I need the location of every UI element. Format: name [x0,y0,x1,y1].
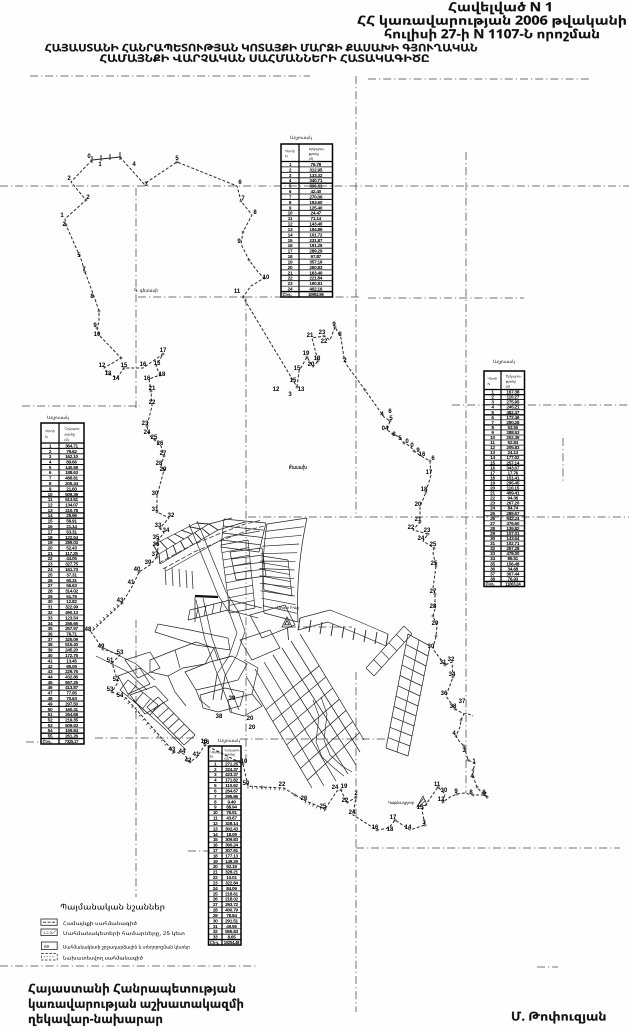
svg-text:88.94: 88.94 [226,805,237,810]
svg-text:27: 27 [48,583,53,588]
svg-text:20: 20 [247,716,254,722]
svg-text:509.39: 509.39 [65,492,78,497]
svg-text:15: 15 [290,378,297,384]
svg-text:24: 24 [48,567,53,572]
svg-text:171.82: 171.82 [225,778,238,783]
svg-text:423.37: 423.37 [225,772,238,777]
svg-text:302.43: 302.43 [225,826,238,831]
svg-text:21: 21 [288,270,293,275]
svg-text:26: 26 [301,796,308,802]
svg-text:25: 25 [48,572,53,577]
svg-text:24: 24 [288,287,293,292]
svg-text:250.83: 250.83 [309,265,322,270]
svg-text:20: 20 [249,725,256,731]
svg-text:325.09: 325.09 [65,637,78,642]
svg-text:161.73: 161.73 [65,567,78,572]
svg-text:13: 13 [48,508,53,513]
svg-text:51.79: 51.79 [66,594,77,599]
svg-text:19: 19 [303,351,310,357]
svg-text:12: 12 [48,503,53,508]
svg-text:69: 69 [44,944,50,949]
svg-text:13.45: 13.45 [66,658,77,663]
svg-text:14: 14 [213,832,218,837]
svg-text:224.37: 224.37 [225,767,238,772]
svg-text:134.07: 134.07 [65,503,78,508]
svg-text:31: 31 [152,507,159,513]
svg-text:509.93: 509.93 [65,723,78,728]
svg-text:297.50: 297.50 [65,701,78,706]
svg-text:12: 12 [273,387,280,393]
svg-text:10: 10 [288,211,293,216]
svg-text:49: 49 [98,644,105,650]
svg-text:255.65: 255.65 [65,621,78,626]
svg-text:18: 18 [421,487,428,493]
svg-text:26: 26 [157,441,164,447]
svg-text:10: 10 [263,275,270,281]
svg-text:15: 15 [213,837,218,842]
svg-text:27: 27 [160,451,167,457]
svg-text:289.29: 289.29 [309,249,322,254]
svg-text:21.60: 21.60 [66,486,77,491]
svg-text:289.03: 289.03 [65,540,78,545]
svg-text:295.86: 295.86 [225,794,238,799]
svg-text:23: 23 [142,421,149,427]
svg-text:36: 36 [441,691,448,697]
svg-text:210.78: 210.78 [65,508,78,513]
svg-text:314.02: 314.02 [65,589,78,594]
svg-text:16: 16 [203,740,210,746]
svg-text:53: 53 [107,687,114,693]
svg-text:18: 18 [314,356,321,362]
svg-text:12.82: 12.82 [66,599,77,604]
svg-text:271.25: 271.25 [225,761,238,766]
svg-text:557.25: 557.25 [65,680,78,685]
svg-text:38: 38 [490,576,495,581]
svg-text:12: 12 [438,797,445,803]
svg-text:40: 40 [134,567,141,573]
svg-text:133.32: 133.32 [309,173,322,178]
svg-text:488.81: 488.81 [65,476,78,481]
svg-text:56.63: 56.63 [66,583,77,588]
svg-text:33: 33 [213,935,218,940]
svg-text:21: 21 [415,517,422,523]
svg-text:23: 23 [319,330,326,336]
svg-text:37.31: 37.31 [66,572,77,577]
svg-text:32: 32 [168,513,175,519]
svg-text:309.83: 309.83 [225,837,238,842]
svg-text:10952.95: 10952.95 [308,292,324,297]
svg-text:21: 21 [149,386,156,392]
svg-text:13: 13 [213,826,218,831]
svg-text:31: 31 [440,660,447,666]
svg-text:41: 41 [128,580,135,586]
svg-text:16: 16 [140,362,147,368]
svg-text:29: 29 [432,621,439,627]
svg-text:322.99: 322.99 [65,605,78,610]
svg-text:18: 18 [213,853,218,858]
svg-text:17: 17 [390,815,397,821]
svg-text:26: 26 [48,578,53,583]
svg-text:12: 12 [99,363,106,369]
svg-text:41: 41 [48,658,53,663]
svg-text:245.20: 245.20 [65,648,78,653]
svg-text:25: 25 [431,561,438,567]
svg-text:24: 24 [332,785,339,791]
svg-text:90.31: 90.31 [66,578,77,583]
svg-text:143.40: 143.40 [309,222,322,227]
svg-text:38: 38 [48,642,53,647]
svg-text:328.14: 328.14 [225,821,238,826]
svg-text:270.06: 270.06 [309,194,322,199]
svg-text:19: 19 [341,784,348,790]
svg-text:413.87: 413.87 [65,685,78,690]
svg-text:10: 10 [48,492,53,497]
svg-text:140.58: 140.58 [65,465,78,470]
svg-text:10: 10 [94,332,101,338]
svg-text:21: 21 [307,333,314,339]
svg-text:18: 18 [159,372,166,378]
svg-text:97.87: 97.87 [311,254,322,259]
svg-text:53: 53 [48,723,53,728]
svg-text:52.43: 52.43 [66,546,77,551]
svg-text:291.51: 291.51 [225,918,238,923]
svg-text:10254.48: 10254.48 [224,940,240,945]
svg-text:71.14: 71.14 [311,216,322,221]
svg-text:24: 24 [349,810,356,816]
svg-text:10: 10 [213,810,218,815]
svg-text:31: 31 [213,924,218,929]
svg-text:54: 54 [117,693,124,699]
svg-text:18: 18 [387,827,394,833]
svg-text:15: 15 [294,366,301,372]
svg-text:13: 13 [105,371,112,377]
svg-text:16: 16 [419,452,426,458]
svg-text:30: 30 [48,599,53,604]
svg-text:188.63: 188.63 [65,470,78,475]
svg-text:490.13: 490.13 [65,610,78,615]
svg-text:16: 16 [372,825,379,831]
svg-text:11: 11 [213,816,218,821]
svg-text:56.91: 56.91 [66,519,77,524]
svg-text:101.72: 101.72 [309,232,322,237]
svg-text:28: 28 [48,589,53,594]
svg-text:400.79: 400.79 [225,908,238,913]
svg-text:19: 19 [48,540,53,545]
svg-text:27: 27 [430,589,437,595]
svg-text:23: 23 [288,281,293,286]
svg-text:44: 44 [48,675,53,680]
svg-text:34: 34 [163,528,170,534]
svg-text:9.49: 9.49 [227,799,236,804]
svg-text:76.78: 76.78 [311,162,322,167]
svg-text:328.21: 328.21 [225,870,238,875]
svg-text:29: 29 [48,594,53,599]
svg-text:22: 22 [321,339,328,345]
svg-text:49: 49 [48,701,53,706]
svg-text:125.40: 125.40 [309,205,322,210]
svg-text:17: 17 [160,348,167,354]
svg-text:32: 32 [448,657,455,663]
svg-text:555.83: 555.83 [225,929,238,934]
svg-text:159.84: 159.84 [65,728,78,733]
svg-text:172.75: 172.75 [65,653,78,658]
svg-text:16: 16 [144,376,151,382]
svg-text:14: 14 [113,376,120,382]
svg-text:340.71: 340.71 [309,178,322,183]
svg-text:221.84: 221.84 [309,276,322,281]
svg-text:77.95: 77.95 [66,691,77,696]
svg-text:15: 15 [288,238,293,243]
svg-text:79.62: 79.62 [66,449,77,454]
svg-text:7325.17: 7325.17 [65,739,79,744]
svg-text:26: 26 [213,897,218,902]
svg-text:18: 18 [48,535,53,540]
svg-text:12: 12 [288,222,293,227]
svg-text:293.72: 293.72 [225,902,238,907]
svg-text:44.05: 44.05 [66,556,77,561]
svg-text:42: 42 [185,758,192,764]
svg-text:28: 28 [213,908,218,913]
svg-text:23: 23 [48,562,53,567]
svg-text:17: 17 [426,470,433,476]
svg-text:390.24: 390.24 [225,843,238,848]
svg-text:110.62: 110.62 [225,783,238,788]
svg-text:23: 23 [213,881,218,886]
svg-text:177.13: 177.13 [225,853,238,858]
svg-text:16: 16 [213,843,218,848]
svg-text:20: 20 [213,864,218,869]
svg-text:20: 20 [48,546,53,551]
svg-text:40: 40 [48,653,53,658]
svg-text:54: 54 [48,728,53,733]
svg-text:21: 21 [213,870,218,875]
svg-text:25.96: 25.96 [66,513,77,518]
svg-text:14: 14 [48,513,53,518]
svg-text:70.63: 70.63 [66,696,77,701]
svg-text:264.68: 264.68 [65,712,78,717]
svg-text:46: 46 [48,685,53,690]
svg-text:30: 30 [428,644,435,650]
svg-text:194.89: 194.89 [309,227,322,232]
svg-text:55: 55 [48,734,53,739]
svg-text:32: 32 [48,610,53,615]
svg-text:29: 29 [213,913,218,918]
svg-text:205.34: 205.34 [65,481,78,486]
svg-text:24: 24 [213,886,218,891]
svg-text:16: 16 [48,524,53,529]
svg-text:22: 22 [149,400,156,406]
svg-text:39: 39 [145,560,152,566]
svg-text:25: 25 [430,542,437,548]
svg-text:78.84: 78.84 [226,913,237,918]
svg-text:20: 20 [308,362,315,368]
svg-text:34: 34 [48,621,53,626]
svg-text:14: 14 [288,232,293,237]
svg-text:307.91: 307.91 [225,848,238,853]
svg-text:35: 35 [48,626,53,631]
svg-text:432.86: 432.86 [65,675,78,680]
svg-text:15: 15 [121,363,128,369]
svg-text:231.87: 231.87 [309,238,322,243]
svg-text:117.25: 117.25 [65,551,78,556]
svg-text:15: 15 [48,519,53,524]
svg-text:43.67: 43.67 [226,816,237,821]
svg-text:04: 04 [382,426,389,432]
svg-text:37: 37 [48,637,53,642]
svg-text:322.84: 322.84 [225,881,238,886]
svg-text:218.61: 218.61 [225,891,238,896]
svg-text:18.09: 18.09 [226,832,237,837]
svg-text:50: 50 [48,707,53,712]
svg-text:35: 35 [153,535,160,541]
svg-text:24: 24 [418,536,425,542]
svg-text:163.40: 163.40 [309,270,322,275]
svg-text:47: 47 [48,691,53,696]
svg-text:13: 13 [288,227,293,232]
svg-text:39: 39 [48,648,53,653]
svg-text:22: 22 [342,798,349,804]
svg-text:20: 20 [288,265,293,270]
svg-text:22: 22 [213,875,218,880]
svg-text:515.40: 515.40 [65,642,78,647]
svg-text:44: 44 [179,749,186,755]
svg-text:14: 14 [405,825,412,831]
svg-text:30: 30 [152,491,159,497]
svg-text:17: 17 [213,848,218,853]
svg-text:31: 31 [48,605,53,610]
svg-text:396.61: 396.61 [309,184,322,189]
svg-text:21.14: 21.14 [66,524,77,529]
svg-text:22: 22 [288,276,293,281]
svg-text:49.55: 49.55 [226,924,237,929]
svg-text:32: 32 [213,929,218,934]
svg-text:53.31: 53.31 [66,529,77,534]
svg-text:11: 11 [288,216,293,221]
svg-text:33: 33 [155,523,162,529]
svg-text:1,2,3: 1,2,3 [43,930,53,935]
svg-text:16: 16 [288,243,293,248]
svg-text:38: 38 [450,704,457,710]
svg-text:36: 36 [48,632,53,637]
svg-text:19: 19 [213,859,218,864]
svg-text:264.67: 264.67 [225,789,238,794]
svg-text:160.31: 160.31 [65,707,78,712]
svg-text:52: 52 [48,718,53,723]
svg-text:17: 17 [288,249,293,254]
svg-text:42: 42 [48,664,53,669]
svg-text:92.19: 92.19 [226,864,237,869]
svg-text:10: 10 [241,759,248,765]
svg-text:21: 21 [48,551,53,556]
svg-text:11: 11 [234,289,241,295]
svg-text:22: 22 [279,782,286,788]
svg-text:22: 22 [408,525,415,531]
svg-text:327.75: 327.75 [65,562,78,567]
svg-text:12: 12 [213,821,218,826]
svg-text:23: 23 [424,528,431,534]
svg-text:191.26: 191.26 [309,243,322,248]
svg-text:45: 45 [48,680,53,685]
svg-text:51: 51 [48,712,53,717]
svg-text:312.95: 312.95 [309,167,322,172]
svg-text:229.76: 229.76 [65,669,78,674]
svg-text:219.35: 219.35 [65,718,78,723]
svg-text:25: 25 [213,891,218,896]
svg-text:33: 33 [48,615,53,620]
svg-text:50: 50 [243,781,250,787]
svg-text:89.66: 89.66 [66,460,77,465]
svg-text:19: 19 [288,260,293,265]
svg-text:357.16: 357.16 [309,260,322,265]
svg-text:15: 15 [154,361,161,367]
svg-text:218.02: 218.02 [225,897,238,902]
svg-text:84.09: 84.09 [226,886,237,891]
svg-text:27: 27 [213,902,218,907]
svg-text:37: 37 [459,699,466,705]
svg-text:13: 13 [298,387,305,393]
svg-text:10.01: 10.01 [226,875,237,880]
svg-text:20: 20 [415,502,422,508]
svg-text:29: 29 [160,467,167,473]
svg-text:190.81: 190.81 [309,281,322,286]
svg-text:76.71: 76.71 [66,632,77,637]
svg-text:48: 48 [48,696,53,701]
svg-text:149.29: 149.29 [225,859,238,864]
svg-text:11: 11 [48,497,53,502]
svg-text:36: 36 [153,542,160,548]
svg-text:43: 43 [48,669,53,674]
svg-text:76.51: 76.51 [226,810,237,815]
svg-text:122.54: 122.54 [65,535,78,540]
svg-text:42.40: 42.40 [311,189,322,194]
svg-text:257.97: 257.97 [65,626,78,631]
svg-text:22: 22 [48,556,53,561]
svg-text:17: 17 [48,529,53,534]
svg-text:30: 30 [213,918,218,923]
svg-text:28: 28 [430,604,437,610]
svg-text:30: 30 [441,788,448,794]
svg-text:18: 18 [288,254,293,259]
svg-text:162.10: 162.10 [65,454,78,459]
svg-text:38: 38 [216,714,223,720]
svg-text:41: 41 [193,752,200,758]
svg-text:364.71: 364.71 [65,443,78,448]
svg-text:95.09: 95.09 [66,664,77,669]
svg-text:513.51: 513.51 [65,497,78,502]
svg-text:193.60: 193.60 [309,200,322,205]
svg-text:24.47: 24.47 [311,211,322,216]
svg-text:123.54: 123.54 [65,615,78,620]
svg-text:34: 34 [449,672,456,678]
